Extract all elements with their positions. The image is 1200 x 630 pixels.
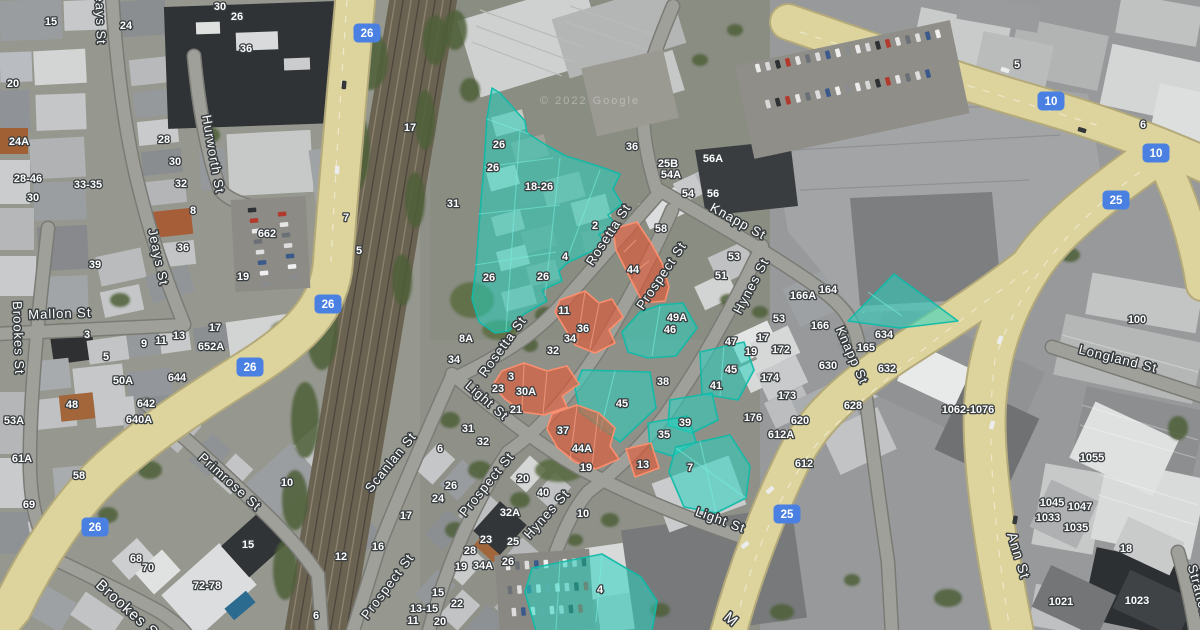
lot-number-label: 6	[1140, 119, 1146, 131]
lot-number-label: 2	[592, 220, 598, 232]
lot-number-label: 17	[209, 322, 221, 334]
lot-number-label: 8	[190, 205, 196, 217]
lot-number-label: 18	[1120, 543, 1132, 555]
svg-text:10: 10	[1150, 148, 1163, 160]
lot-number-label: 632	[878, 363, 896, 375]
route-shield: 25	[774, 505, 801, 524]
lot-number-label: 19	[237, 271, 249, 283]
lot-number-label: 68	[130, 553, 142, 565]
lot-number-label: 644	[168, 372, 187, 384]
lot-number-label: 1047	[1068, 501, 1092, 513]
lot-number-label: 39	[679, 417, 691, 429]
lot-number-label: 41	[710, 380, 722, 392]
lot-number-label: 5	[356, 245, 362, 257]
lot-number-label: 26	[487, 162, 499, 174]
lot-number-label: 56	[707, 188, 719, 200]
lot-number-label: 4	[562, 251, 569, 263]
lot-number-label: 33-35	[74, 179, 102, 191]
lot-number-label: 28	[464, 545, 476, 557]
lot-number-label: 26	[502, 556, 514, 568]
lot-number-label: 5	[1014, 59, 1020, 71]
route-shield: 10	[1143, 144, 1170, 163]
lot-number-label: 172	[772, 344, 790, 356]
lot-number-label: 69	[23, 499, 35, 511]
lot-number-label: 1023	[1125, 595, 1149, 607]
lot-number-label: 23	[492, 383, 504, 395]
lot-number-label: 15	[432, 587, 444, 599]
lot-number-label: 11	[558, 305, 570, 317]
lot-number-label: 28-46	[14, 173, 42, 185]
lot-number-label: 640A	[126, 414, 152, 426]
lot-number-label: 46	[664, 324, 676, 336]
lot-number-label: 26	[537, 271, 549, 283]
lot-number-label: 3	[84, 329, 90, 341]
lot-number-label: 11	[155, 335, 167, 347]
lot-number-label: 26	[483, 272, 495, 284]
lot-number-label: 166A	[790, 290, 816, 302]
route-shield: 10	[1038, 92, 1065, 111]
lot-number-label: 72-78	[193, 580, 221, 592]
lot-number-label: 8A	[459, 333, 473, 345]
lot-number-label: 16	[372, 541, 384, 553]
lot-number-label: 174	[761, 372, 780, 384]
lot-number-label: 634	[875, 329, 894, 341]
lot-number-label: 9	[141, 338, 147, 350]
lot-number-label: 10	[577, 508, 589, 520]
svg-text:26: 26	[89, 522, 102, 534]
lot-number-label: 19	[580, 462, 592, 474]
lot-number-label: 24A	[9, 136, 29, 148]
lot-number-label: 37	[557, 425, 569, 437]
lot-number-label: 53A	[4, 415, 24, 427]
lot-number-label: 19	[455, 561, 467, 573]
lot-number-label: 32A	[500, 507, 520, 519]
highlighted-parcel-teal[interactable]	[669, 435, 750, 513]
lot-number-label: 25	[507, 536, 519, 548]
lot-number-label: 53	[728, 251, 740, 263]
lot-number-label: 20	[517, 473, 529, 485]
map-screenshot: © 2022 Google 15243026362024A28303228-46…	[0, 0, 1200, 630]
lot-number-label: 5	[103, 351, 109, 363]
route-shield: 26	[354, 24, 381, 43]
lot-number-label: 1035	[1064, 522, 1088, 534]
lot-number-label: 100	[1128, 314, 1146, 326]
lot-number-label: 1062-1076	[942, 404, 995, 416]
lot-number-label: 28	[158, 134, 170, 146]
svg-text:10: 10	[1045, 96, 1058, 108]
lot-number-label: 23	[480, 534, 492, 546]
lot-number-label: 18-26	[525, 181, 553, 193]
lot-number-label: 56A	[703, 153, 723, 165]
lot-number-label: 3	[508, 371, 514, 383]
street-name-label: Brookes St	[10, 301, 28, 375]
lot-number-label: 15	[242, 539, 254, 551]
lot-number-label: 36	[240, 43, 252, 55]
street-name-label: Jeays St	[92, 0, 109, 45]
lot-number-label: 7	[687, 462, 693, 474]
lot-number-label: 45	[616, 398, 628, 410]
lot-number-label: 6	[437, 443, 443, 455]
lot-number-label: 50A	[113, 375, 133, 387]
lot-number-label: 17	[400, 510, 412, 522]
lot-number-label: 13	[637, 459, 649, 471]
lot-number-label: 620	[791, 415, 809, 427]
route-shield: 26	[237, 358, 264, 377]
lot-number-label: 662	[258, 228, 276, 240]
lot-number-label: 173	[778, 390, 796, 402]
lot-number-label: 6	[313, 610, 319, 622]
lot-number-label: 612	[795, 458, 813, 470]
lot-number-label: 1045	[1040, 497, 1064, 509]
lot-number-label: 39	[89, 259, 101, 271]
lot-number-label: 35	[658, 429, 670, 441]
svg-text:25: 25	[781, 509, 794, 521]
lot-number-label: 612A	[768, 429, 794, 441]
lot-number-label: 38	[657, 376, 669, 388]
lot-number-label: 166	[811, 320, 829, 332]
lot-number-label: 34	[564, 333, 577, 345]
lot-number-label: 630	[819, 360, 837, 372]
lot-number-label: 26	[231, 11, 243, 23]
lot-number-label: 1033	[1036, 512, 1060, 524]
satellite-map-canvas[interactable]: © 2022 Google 15243026362024A28303228-46…	[0, 0, 1200, 630]
lot-number-label: 1055	[1080, 452, 1104, 464]
lot-number-label: 15	[45, 16, 57, 28]
lot-number-label: 20	[7, 78, 19, 90]
lot-number-label: 30	[214, 1, 226, 13]
lot-number-label: 32	[547, 345, 559, 357]
lot-number-label: 1021	[1049, 596, 1073, 608]
lot-number-label: 30A	[516, 386, 536, 398]
lot-number-label: 48	[66, 399, 78, 411]
imagery-attribution: © 2022 Google	[540, 95, 640, 107]
lot-number-label: 4	[597, 584, 604, 596]
lot-number-label: 7	[343, 212, 349, 224]
lot-number-label: 628	[844, 400, 862, 412]
lot-number-label: 12	[335, 551, 347, 563]
lot-number-label: 32	[477, 436, 489, 448]
lot-number-label: 34	[448, 354, 461, 366]
lot-number-label: 53	[773, 313, 785, 325]
lot-number-label: 30	[169, 156, 181, 168]
lot-number-label: 40	[537, 487, 549, 499]
lot-number-label: 642	[137, 398, 155, 410]
lot-number-label: 32	[175, 178, 187, 190]
lot-number-label: 11	[407, 615, 419, 627]
street-name-label: Mallon St	[28, 305, 92, 322]
lot-number-label: 31	[447, 198, 459, 210]
route-shield: 26	[315, 295, 342, 314]
lot-number-label: 51	[715, 270, 727, 282]
lot-number-label: 70	[142, 562, 154, 574]
lot-number-label: 36	[626, 141, 638, 153]
lot-number-label: 652A	[198, 341, 224, 353]
lot-number-label: 36	[577, 323, 589, 335]
lot-number-label: 31	[462, 423, 474, 435]
lot-number-label: 17	[404, 122, 416, 134]
lot-number-label: 20	[434, 616, 446, 628]
route-shield: 26	[82, 518, 109, 537]
lot-number-label: 22	[451, 598, 463, 610]
lot-number-label: 24	[432, 493, 445, 505]
lot-number-label: 21	[510, 404, 522, 416]
svg-text:25: 25	[1110, 195, 1123, 207]
lot-number-label: 19	[745, 346, 757, 358]
lot-number-label: 44	[627, 264, 640, 276]
svg-text:26: 26	[322, 299, 335, 311]
route-shield: 25	[1103, 191, 1130, 210]
lot-number-label: 36	[177, 242, 189, 254]
lot-number-label: 13-15	[410, 603, 438, 615]
lot-number-label: 26	[493, 139, 505, 151]
lot-number-label: 44A	[572, 443, 592, 455]
lot-number-label: 26	[445, 480, 457, 492]
lot-number-label: 45	[725, 364, 737, 376]
lot-number-label: 49A	[667, 312, 687, 324]
svg-text:26: 26	[244, 362, 257, 374]
lot-number-label: 47	[725, 336, 737, 348]
lot-number-label: 54	[682, 188, 695, 200]
lot-number-label: 58	[73, 470, 85, 482]
lot-number-label: 17	[757, 332, 769, 344]
lot-number-label: 13	[173, 330, 185, 342]
lot-number-label: 58	[655, 223, 667, 235]
lot-number-label: 54A	[661, 169, 681, 181]
lot-number-label: 34A	[473, 560, 493, 572]
lot-number-label: 10	[281, 477, 293, 489]
lot-number-label: 24	[120, 20, 133, 32]
lot-number-label: 30	[27, 192, 39, 204]
svg-text:26: 26	[361, 28, 374, 40]
lot-number-label: 61A	[12, 453, 32, 465]
lot-number-label: 164	[819, 284, 838, 296]
lot-number-label: 176	[744, 412, 762, 424]
